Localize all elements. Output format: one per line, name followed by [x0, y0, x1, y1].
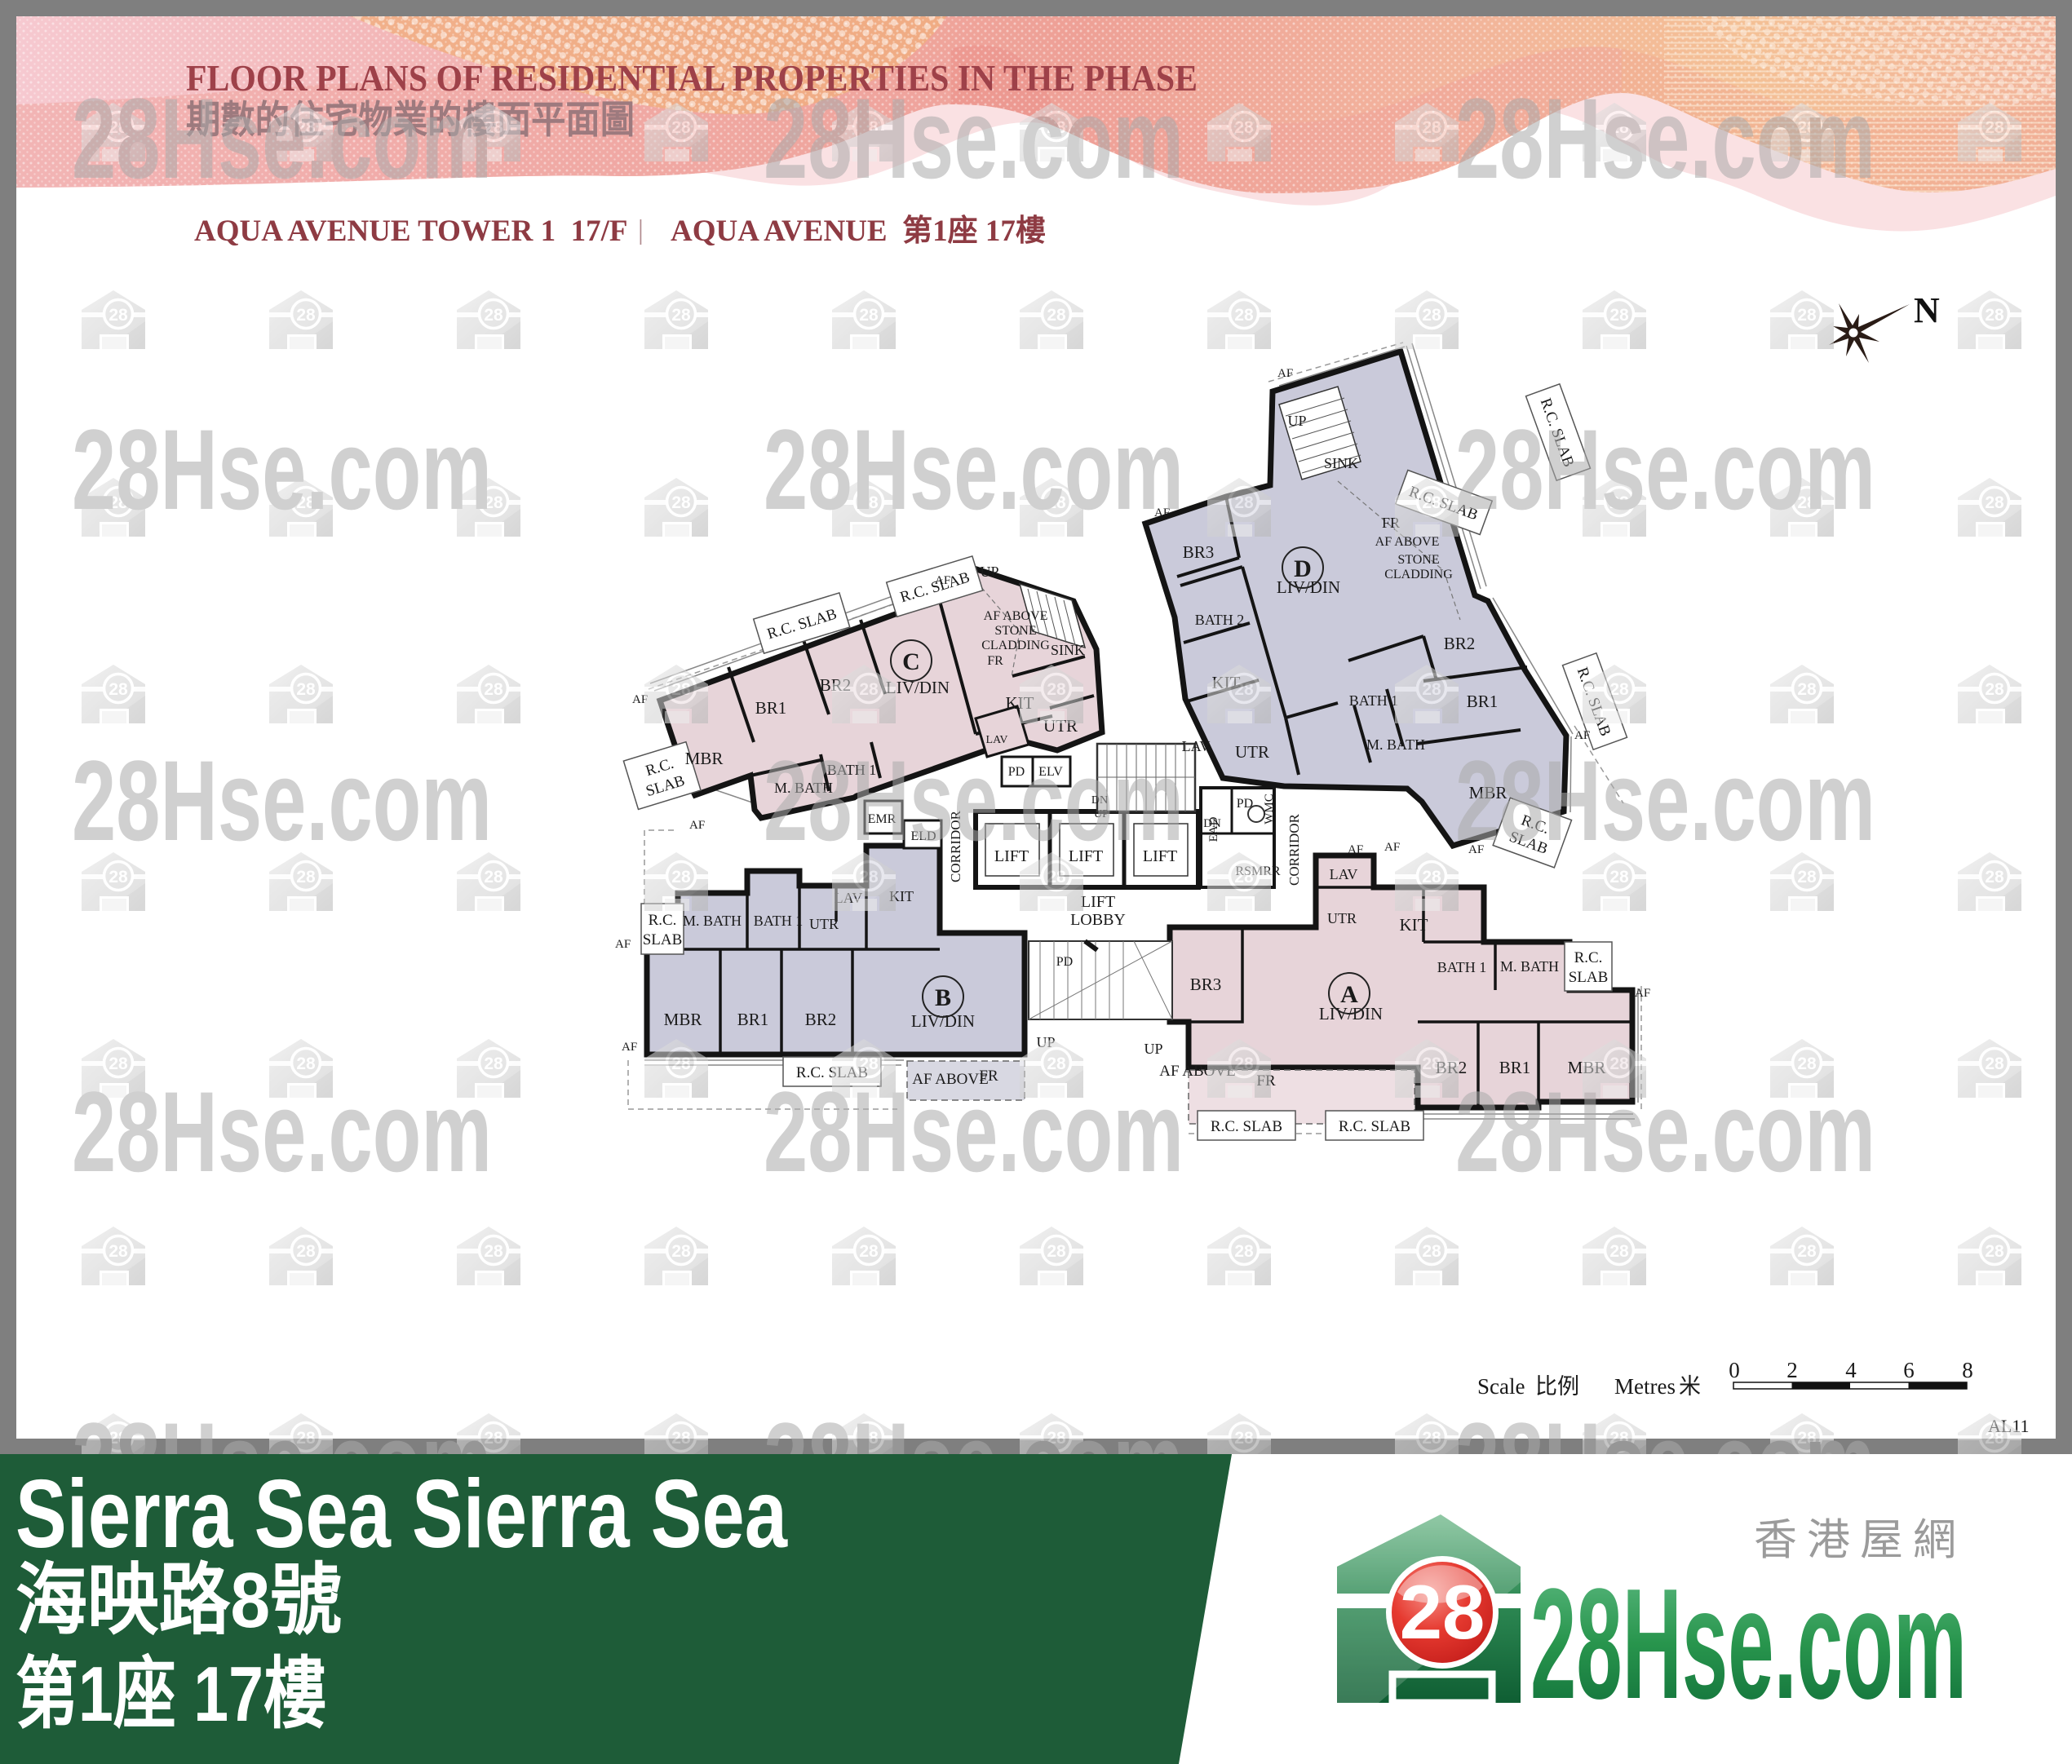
svg-text:AF ABOVE: AF ABOVE: [984, 609, 1048, 623]
svg-text:LOBBY: LOBBY: [1070, 911, 1126, 929]
svg-text:2: 2: [1786, 1358, 1798, 1382]
svg-text:M. BATH: M. BATH: [683, 913, 742, 929]
svg-text:AQUA AVENUE TOWER 1 17/F: AQUA AVENUE TOWER 1 17/F: [194, 214, 627, 248]
svg-text:LIFT: LIFT: [1081, 893, 1115, 911]
svg-text:BATH 2: BATH 2: [1195, 612, 1245, 628]
svg-text:米: 米: [1679, 1374, 1701, 1399]
svg-text:4: 4: [1845, 1358, 1857, 1382]
svg-text:C: C: [902, 648, 920, 675]
svg-text:6: 6: [1903, 1358, 1915, 1382]
svg-text:BR2: BR2: [805, 1010, 837, 1029]
svg-text:AF: AF: [1635, 987, 1650, 1000]
svg-text:香港屋網: 香港屋網: [1754, 1516, 1966, 1564]
svg-text:SINK: SINK: [1051, 642, 1085, 658]
svg-text:CLADDING: CLADDING: [1384, 568, 1453, 581]
svg-text:KIT: KIT: [1400, 915, 1428, 935]
svg-text:AF: AF: [1277, 367, 1293, 380]
svg-text:|: |: [638, 215, 644, 245]
svg-text:BR3: BR3: [1183, 542, 1215, 562]
svg-text:BATH 1: BATH 1: [754, 913, 804, 929]
svg-text:BATH 1: BATH 1: [1349, 692, 1399, 709]
svg-text:比例: 比例: [1535, 1374, 1579, 1399]
svg-text:UTR: UTR: [1327, 910, 1357, 926]
svg-text:AF ABOVE: AF ABOVE: [1375, 535, 1440, 549]
svg-text:BR1: BR1: [1467, 692, 1499, 711]
svg-text:STONE: STONE: [1397, 553, 1439, 567]
svg-text:FR: FR: [987, 654, 1003, 668]
svg-text:AF: AF: [1384, 841, 1400, 854]
svg-text:BR3: BR3: [1190, 975, 1222, 994]
svg-text:PD: PD: [1237, 797, 1253, 811]
svg-text:UP: UP: [1287, 413, 1306, 429]
svg-text:M. BATH: M. BATH: [1500, 958, 1559, 975]
svg-text:BR2: BR2: [1444, 634, 1476, 653]
svg-text:AF: AF: [935, 574, 950, 587]
svg-text:Metres: Metres: [1614, 1374, 1676, 1399]
svg-text:Scale: Scale: [1477, 1374, 1525, 1399]
svg-text:STONE: STONE: [994, 624, 1036, 638]
svg-text:0: 0: [1729, 1358, 1740, 1382]
svg-text:UP: UP: [1144, 1041, 1162, 1057]
svg-text:SINK: SINK: [1324, 455, 1358, 471]
svg-text:AF: AF: [689, 819, 705, 832]
svg-text:CORRIDOR: CORRIDOR: [1286, 813, 1302, 886]
svg-text:R.C. SLAB: R.C. SLAB: [1211, 1118, 1282, 1135]
svg-text:R.C. SLAB: R.C. SLAB: [1339, 1118, 1410, 1135]
svg-text:D: D: [1294, 555, 1312, 582]
svg-text:AF: AF: [1348, 843, 1363, 856]
svg-text:LAV: LAV: [1330, 866, 1358, 882]
svg-text:AF: AF: [615, 938, 631, 951]
svg-text:N: N: [1914, 290, 1940, 330]
svg-text:R.C.: R.C.: [649, 912, 677, 929]
svg-text:MBR: MBR: [685, 749, 724, 768]
svg-text:PD: PD: [1056, 955, 1073, 969]
svg-text:A: A: [1340, 981, 1358, 1008]
svg-text:AF: AF: [622, 1041, 637, 1054]
svg-text:AQUA AVENUE 第1座 17樓: AQUA AVENUE 第1座 17樓: [671, 214, 1046, 248]
svg-text:CLADDING: CLADDING: [981, 639, 1050, 652]
svg-text:LAV: LAV: [1182, 738, 1211, 754]
svg-text:UP: UP: [980, 564, 998, 580]
svg-text:SLAB: SLAB: [643, 931, 683, 948]
svg-text:8: 8: [1962, 1358, 1973, 1382]
svg-text:MBR: MBR: [664, 1010, 702, 1029]
svg-text:BR1: BR1: [755, 698, 787, 718]
svg-text:UTR: UTR: [809, 916, 839, 932]
svg-text:28Hse.com: 28Hse.com: [1530, 1555, 1967, 1731]
svg-text:SLAB: SLAB: [1569, 969, 1609, 986]
svg-text:LIV/DIN: LIV/DIN: [911, 1011, 975, 1031]
svg-text:M. BATH: M. BATH: [1366, 736, 1425, 753]
svg-text:Sierra Sea Sierra Sea: Sierra Sea Sierra Sea: [15, 1460, 788, 1568]
svg-text:28: 28: [1400, 1569, 1485, 1655]
svg-text:BATH 1: BATH 1: [1437, 959, 1487, 975]
svg-text:UTR: UTR: [1235, 742, 1269, 762]
svg-text:第1座 17樓: 第1座 17樓: [15, 1651, 326, 1738]
svg-text:BR1: BR1: [737, 1010, 769, 1029]
svg-text:DN: DN: [1203, 817, 1221, 830]
svg-text:B: B: [935, 984, 951, 1011]
svg-text:R.C.: R.C.: [1574, 949, 1603, 966]
svg-text:海映路8號: 海映路8號: [15, 1557, 342, 1644]
svg-text:WMC: WMC: [1263, 794, 1276, 825]
